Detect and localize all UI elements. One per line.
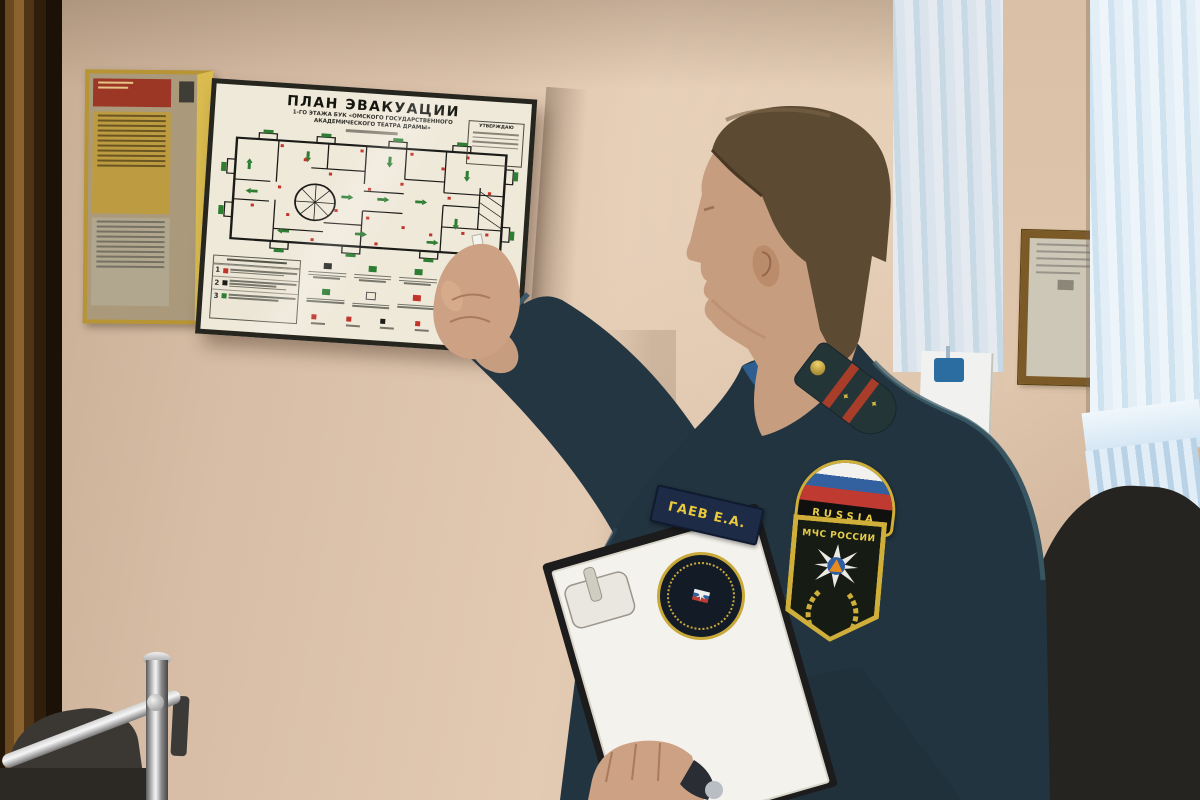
epaulette-button [807,357,828,378]
civil-defense-star [811,541,861,591]
watch-face [705,781,723,799]
inspector-figure [0,0,1200,800]
laurel-branches [796,584,869,630]
office-scene: ПЛАН ЭВАКУАЦИИ 1-ГО ЭТАЖА БУК «ОМСКОГО Г… [0,0,1200,800]
